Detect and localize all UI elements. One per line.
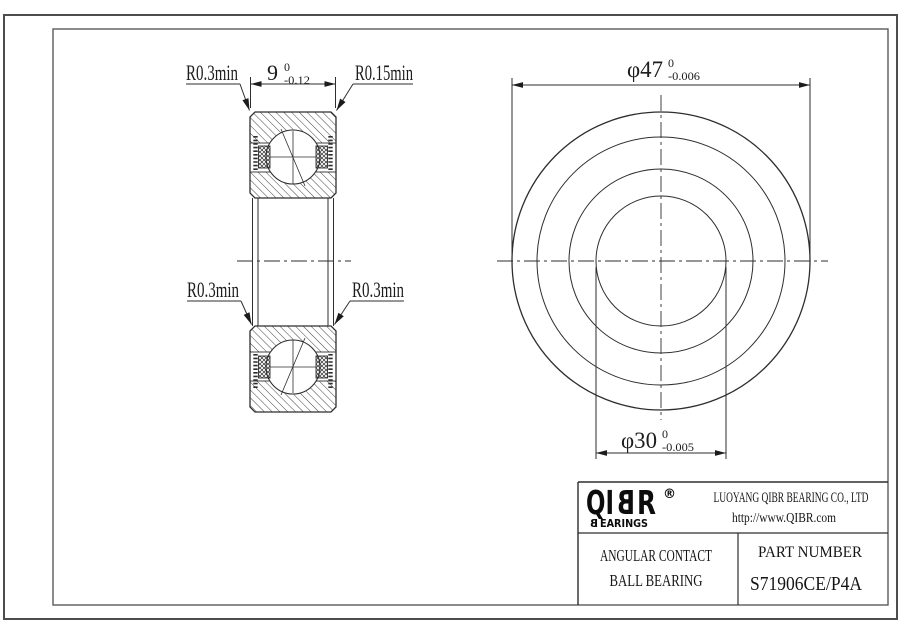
- label-top-right: R0.15min: [355, 60, 413, 85]
- cage-right: [316, 356, 328, 378]
- logo-text-mirrored-b: B: [617, 483, 635, 522]
- part-number-value: S71906CE/P4A: [750, 573, 862, 595]
- dim-width-tol-lower: -0.12: [284, 73, 310, 87]
- dim-bore-tol-upper: 0: [662, 427, 668, 441]
- dim-outer-value: φ47: [627, 57, 663, 82]
- label-mid-left: R0.3min: [187, 277, 239, 302]
- tagline-text: EARINGS: [600, 518, 648, 530]
- label-top-left: R0.3min: [186, 60, 238, 85]
- product-name-line2: BALL BEARING: [610, 571, 703, 590]
- dim-outer-tol-lower: -0.006: [668, 69, 700, 83]
- dim-width-tol-upper: 0: [284, 60, 290, 74]
- front-view: φ47 0 -0.006 φ30 0 -0.005: [497, 56, 828, 459]
- logo-text-qi: QI: [586, 483, 614, 522]
- cage-left: [259, 356, 271, 378]
- section-top-half: [250, 112, 336, 198]
- dim-outer-tol-upper: 0: [668, 56, 674, 70]
- drawing-canvas: 9 0 -0.12 R0.3min R0.15min R0.3min R0.3m…: [0, 0, 900, 636]
- title-block: QI B R ® B EARINGS LUOYANG QIBR BEARING …: [578, 482, 888, 605]
- outer-border: [4, 15, 897, 619]
- drawing-sheet: 9 0 -0.12 R0.3min R0.15min R0.3min R0.3m…: [0, 0, 900, 636]
- cage-left: [259, 146, 271, 168]
- label-mid-right: R0.3min: [352, 277, 404, 302]
- qibr-logo: QI B R ® B EARINGS: [586, 483, 676, 530]
- product-name-line1: ANGULAR CONTACT: [600, 546, 712, 565]
- dim-width-value: 9: [267, 60, 278, 85]
- width-dimension: 9 0 -0.12: [251, 60, 336, 108]
- logo-text-r: R: [637, 483, 656, 522]
- registered-mark: ®: [663, 487, 676, 502]
- dim-bore-value: φ30: [621, 428, 657, 453]
- part-number-label: PART NUMBER: [758, 544, 862, 561]
- company-website: http://www.QIBR.com: [732, 510, 836, 525]
- cage-right: [316, 146, 328, 168]
- section-view: 9 0 -0.12 R0.3min R0.15min R0.3min R0.3m…: [186, 60, 413, 412]
- dim-bore-tol-lower: -0.005: [662, 440, 694, 454]
- section-bottom-half: [250, 326, 336, 412]
- bore-lines: [253, 198, 334, 326]
- tagline-mirrored-b: B: [590, 518, 598, 530]
- company-name: LUOYANG QIBR BEARING CO., LTD: [714, 490, 869, 506]
